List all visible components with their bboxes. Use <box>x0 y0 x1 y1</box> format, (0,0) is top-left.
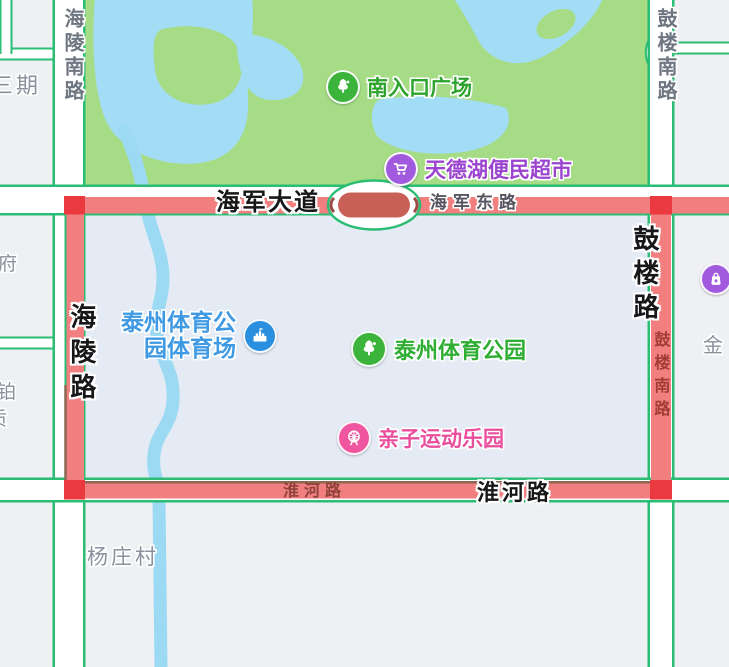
road-label-huaihe: 淮河路 <box>477 481 552 506</box>
area-label-sanqi: 三期 <box>0 74 41 99</box>
area-label-partial: 质 <box>0 409 7 431</box>
area-label-jin: 金 <box>703 334 723 357</box>
route-node-bottom-right <box>650 480 672 500</box>
poi-south-entrance[interactable]: 南入口广场 <box>326 70 472 104</box>
road-label-gulou: 鼓楼路 <box>628 225 658 327</box>
road-label-hailing: 海陵路 <box>65 303 95 408</box>
road-label-hailing-south: 海陵南路 <box>61 8 84 104</box>
area-label-yangzhuangcun: 杨庄村 <box>87 545 159 569</box>
poi-supermarket[interactable]: 天德湖便民超市 <box>384 152 572 186</box>
area-label-bo: 铂 <box>0 382 16 404</box>
shopping-bag-icon <box>700 263 729 295</box>
road-label-gulou-south-top: 鼓楼南路 <box>654 8 677 104</box>
road-label-haijun-east: 海军东路 <box>430 194 522 214</box>
road-label-haijun-avenue: 海军大道 <box>216 189 320 217</box>
route-node-top-right <box>650 196 672 215</box>
poi-kids-park[interactable]: 亲子运动乐园 <box>337 421 504 455</box>
poi-stadium[interactable]: 泰州体育公 园体育场 <box>112 310 277 362</box>
poi-label-supermarket: 天德湖便民超市 <box>425 154 572 184</box>
roundabout <box>328 181 420 230</box>
poi-label-sports-park: 泰州体育公园 <box>394 333 526 365</box>
poi-label-stadium: 泰州体育公 园体育场 <box>112 310 236 362</box>
lake-west-island <box>154 26 243 105</box>
poi-sports-park[interactable]: 泰州体育公园 <box>351 331 526 367</box>
ferris-wheel-icon <box>337 421 371 455</box>
shopping-cart-icon <box>384 152 418 186</box>
map-canvas[interactable]: 海陵南路 鼓楼南路 海军大道 海军东路 海陵路 鼓楼路 鼓楼南路 淮河路 淮河路… <box>0 0 729 667</box>
poi-label-south-entrance: 南入口广场 <box>367 72 472 102</box>
tree-icon <box>351 331 387 367</box>
route-node-top-left <box>64 196 85 215</box>
area-label-fu: 府 <box>0 254 17 276</box>
road-label-gulou-south-on-route: 鼓楼南路 <box>651 331 669 423</box>
poi-mall[interactable] <box>700 263 729 295</box>
poi-label-kids-park: 亲子运动乐园 <box>378 423 504 453</box>
road-label-huaihe-on-route: 淮河路 <box>283 482 346 500</box>
tree-icon <box>326 70 360 104</box>
stadium-icon <box>243 319 277 353</box>
route-node-bottom-left <box>64 480 85 500</box>
